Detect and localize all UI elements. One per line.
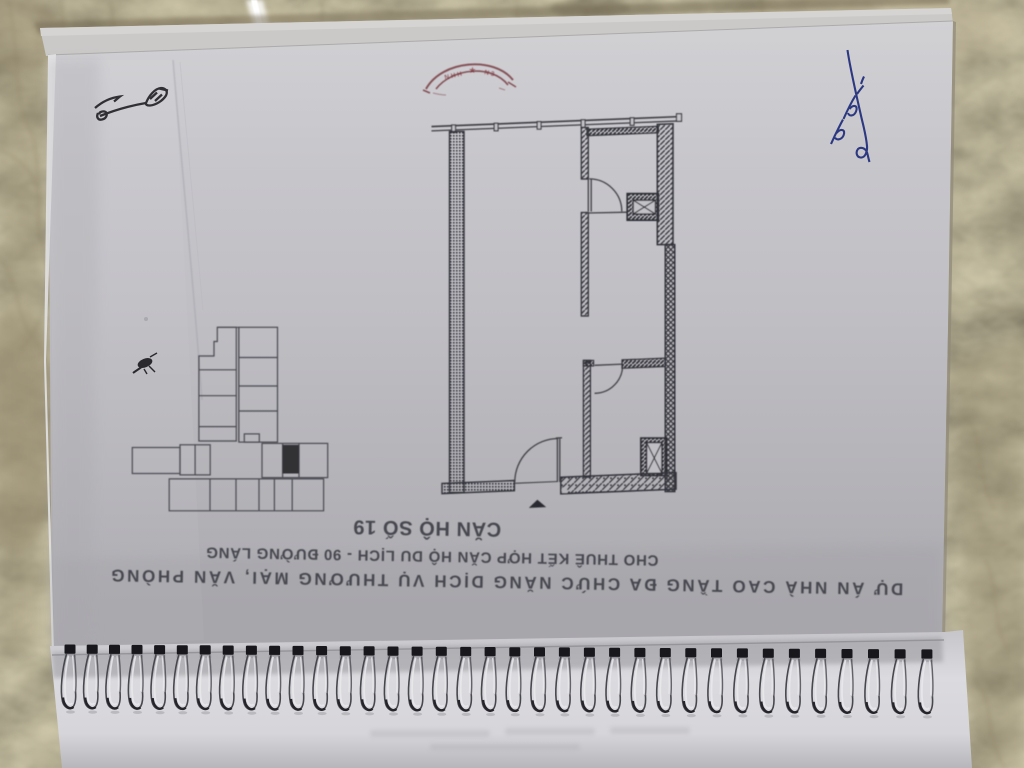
svg-text:CĂN HỘ SỐ 19: CĂN HỘ SỐ 19 — [353, 515, 502, 542]
